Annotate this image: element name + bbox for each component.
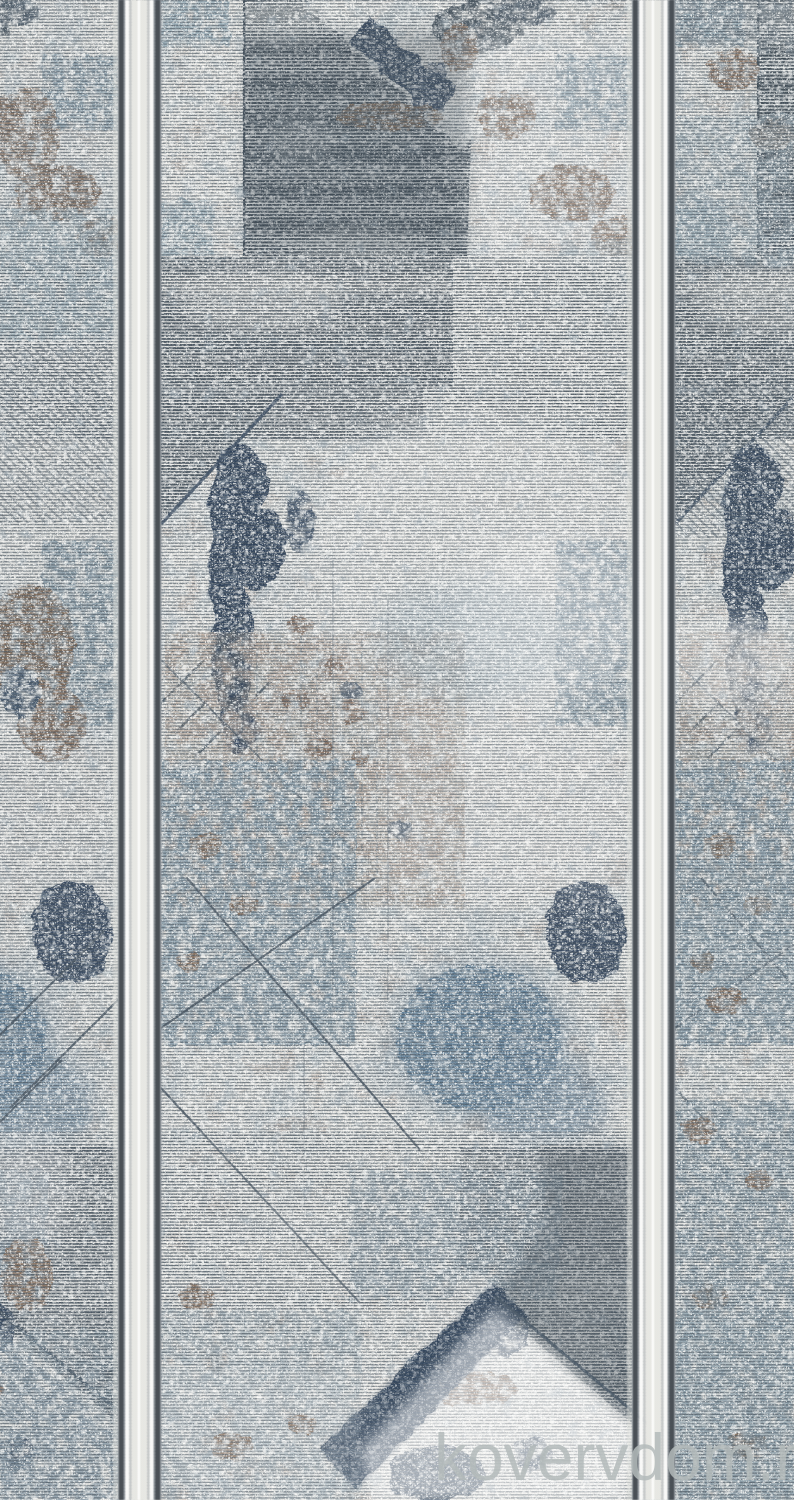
svg-text:kovervdom.ru: kovervdom.ru <box>434 1420 794 1494</box>
